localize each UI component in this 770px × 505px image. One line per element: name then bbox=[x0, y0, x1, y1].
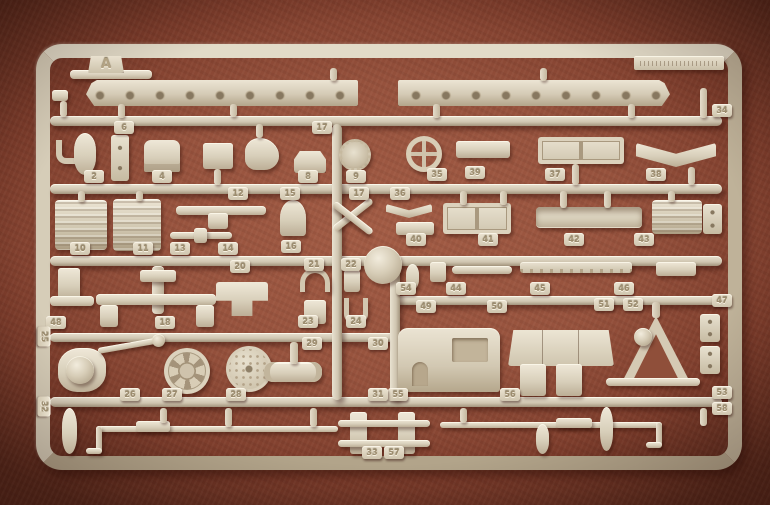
sprue-part-dome bbox=[66, 356, 94, 384]
part-number-tag: 43 bbox=[634, 233, 654, 246]
sprue-part-stub bbox=[230, 104, 237, 117]
part-number-tag: 27 bbox=[162, 388, 182, 401]
sprue-part-box bbox=[196, 305, 214, 327]
part-number-tag: 15 bbox=[280, 187, 300, 200]
part-number-tag: 30 bbox=[368, 337, 388, 350]
part-number-tag: 57 bbox=[384, 446, 404, 459]
sprue-part-stub bbox=[60, 101, 67, 117]
part-number-tag: 50 bbox=[487, 300, 507, 313]
sprue-part-box bbox=[656, 262, 696, 276]
embossed-marking bbox=[634, 56, 724, 70]
long-rod-part bbox=[440, 422, 662, 428]
sprue-part-box bbox=[208, 213, 228, 229]
part-number-tag: 11 bbox=[133, 242, 153, 255]
part-number-tag: 29 bbox=[302, 337, 322, 350]
gearbox-part bbox=[652, 200, 702, 234]
hub-dome-part bbox=[364, 246, 402, 284]
part-number-tag: 4 bbox=[152, 170, 172, 183]
tray-part bbox=[536, 207, 642, 228]
sprue-part-stub bbox=[310, 408, 317, 427]
part-number-tag: 17 bbox=[312, 121, 332, 134]
part-number-tag: 36 bbox=[390, 187, 410, 200]
part-number-tag: 55 bbox=[388, 388, 408, 401]
bell-housing-part bbox=[280, 200, 306, 236]
sprue-part-rodh bbox=[96, 294, 216, 305]
bracket-part bbox=[203, 143, 233, 169]
cylinder-pin-part bbox=[600, 407, 613, 451]
sprue-part-stub bbox=[668, 191, 675, 202]
part-number-tag: 33 bbox=[362, 446, 382, 459]
part-number-tag: 23 bbox=[298, 315, 318, 328]
part-number-tag: 37 bbox=[545, 168, 565, 181]
sprue-part-stub bbox=[136, 191, 143, 201]
pulley-part bbox=[634, 328, 652, 346]
sprue-part-stub bbox=[256, 124, 263, 138]
runner-horizontal-4-right bbox=[390, 296, 722, 305]
part-number-tag: 18 bbox=[155, 316, 175, 329]
sprue-part-stub bbox=[628, 104, 635, 118]
part-number-tag: 13 bbox=[170, 242, 190, 255]
part-number-tag: 28 bbox=[226, 388, 246, 401]
sprue-part-stub bbox=[225, 408, 232, 427]
sprue-part-stub bbox=[604, 191, 611, 208]
part-number-tag: 44 bbox=[446, 282, 466, 295]
sprue-part-stub bbox=[500, 191, 507, 205]
sprue-part-stub bbox=[540, 68, 547, 81]
sprue-part-stub bbox=[433, 104, 440, 118]
part-number-tag: 17 bbox=[349, 187, 369, 200]
cab-front-panel-part bbox=[398, 328, 500, 392]
panel-part bbox=[456, 141, 510, 158]
part-number-tag: 35 bbox=[427, 168, 447, 181]
part-number-tag: 31 bbox=[368, 388, 388, 401]
part-number-tag: 39 bbox=[465, 166, 485, 179]
sprue-part-stub bbox=[118, 104, 125, 118]
sprue-part-box bbox=[556, 364, 582, 396]
part-number-tag: 10 bbox=[70, 242, 90, 255]
perforated-plate-part bbox=[700, 346, 720, 374]
part-number-tag: 14 bbox=[218, 242, 238, 255]
sprue-part-rodh bbox=[338, 420, 430, 427]
part-number-tag: 46 bbox=[614, 282, 634, 295]
photo-stage: A342648917353937381011121314151617364041… bbox=[0, 0, 770, 505]
part-number-tag: 41 bbox=[478, 233, 498, 246]
part-number-tag: 12 bbox=[228, 187, 248, 200]
part-number-tag: 58 bbox=[712, 402, 732, 415]
sprue-part-box bbox=[344, 270, 360, 292]
sprue-part-stub bbox=[560, 191, 567, 208]
runner-horizontal-2 bbox=[50, 184, 722, 194]
sprue-part-stub bbox=[460, 191, 467, 205]
sprue-part-stub bbox=[460, 408, 467, 423]
cylinder-pin-part bbox=[536, 424, 549, 454]
runner-horizontal-4-left bbox=[50, 333, 394, 342]
part-number-tag: 49 bbox=[416, 300, 436, 313]
part-number-tag: 51 bbox=[594, 298, 614, 311]
sprue-part-dome bbox=[152, 334, 165, 347]
long-rod-part bbox=[96, 426, 338, 432]
sprue-part-stub bbox=[330, 68, 337, 81]
part-number-tag: 56 bbox=[500, 388, 520, 401]
runner-horizontal-1 bbox=[50, 116, 722, 126]
part-number-tag: 54 bbox=[396, 282, 416, 295]
part-number-tag: 21 bbox=[304, 258, 324, 271]
sprue-part-stub bbox=[160, 408, 167, 423]
part-number-tag: 34 bbox=[712, 104, 732, 117]
perforated-plate-part bbox=[700, 314, 720, 342]
mudguard-part bbox=[508, 330, 614, 366]
twin-box-part bbox=[443, 203, 511, 234]
sprue-part-stub bbox=[572, 164, 579, 185]
sprue-part-rodh bbox=[646, 442, 662, 448]
muffler-part bbox=[264, 362, 322, 382]
canister-part bbox=[74, 133, 96, 175]
part-number-tag: 38 bbox=[646, 168, 666, 181]
sprue-part-stub bbox=[78, 191, 85, 202]
sprue-part-box bbox=[100, 305, 118, 327]
perforated-plate-part bbox=[703, 204, 722, 234]
part-number-tag: 22 bbox=[341, 258, 361, 271]
small-gun-part bbox=[452, 266, 512, 274]
part-number-tag: 26 bbox=[120, 388, 140, 401]
part-number-tag: 40 bbox=[406, 233, 426, 246]
sprue-part-stub bbox=[290, 342, 298, 364]
plate-part bbox=[111, 135, 129, 181]
part-number-tag: 24 bbox=[346, 315, 366, 328]
sprue-part-stub bbox=[652, 302, 660, 318]
horseshoe-part bbox=[300, 268, 330, 292]
sprue-part-stub bbox=[214, 169, 221, 185]
photo-of-model-kit-sprue: { "scene": { "subject": "tan plastic mod… bbox=[0, 0, 770, 505]
cog-part bbox=[339, 139, 371, 171]
part-number-tag: 6 bbox=[114, 121, 134, 134]
sprue-part-box bbox=[194, 228, 207, 243]
part-number-tag: 16 bbox=[281, 240, 301, 253]
chassis-rail-left bbox=[86, 80, 358, 106]
sprue-part-stub bbox=[688, 167, 695, 185]
cylinder-pin-part bbox=[62, 408, 77, 454]
part-number-tag: 47 bbox=[712, 294, 732, 307]
part-number-tag: 53 bbox=[712, 386, 732, 399]
sprue-part-box bbox=[140, 270, 176, 282]
sprue-part-rodh bbox=[86, 448, 102, 454]
part-number-tag: 42 bbox=[564, 233, 584, 246]
sprue-letter: A bbox=[88, 56, 124, 73]
sprue-part-rodh bbox=[50, 296, 94, 306]
window-frame-part bbox=[538, 137, 624, 164]
part-number-tag: 2 bbox=[84, 170, 104, 183]
part-number-tag: 20 bbox=[230, 260, 250, 273]
steering-wheel-part bbox=[406, 136, 442, 172]
sprue-part-stub bbox=[700, 408, 707, 426]
sprue-part-stub bbox=[700, 88, 707, 118]
part-number-tag: 8 bbox=[298, 170, 318, 183]
part-number-tag: 45 bbox=[530, 282, 550, 295]
chassis-rail-right bbox=[398, 80, 670, 106]
sprue-part-box bbox=[430, 262, 446, 282]
hinge-strip-part bbox=[520, 262, 632, 273]
part-number-tag: 32 bbox=[38, 397, 51, 417]
part-number-tag: 9 bbox=[346, 170, 366, 183]
sprue-part-box bbox=[52, 90, 68, 101]
seat-part bbox=[144, 140, 180, 172]
sprue-part-box bbox=[520, 364, 546, 396]
sprue-part-rodh bbox=[606, 378, 700, 386]
part-number-tag: 52 bbox=[623, 298, 643, 311]
sprue-part-box bbox=[556, 418, 592, 428]
part-number-tag: 25 bbox=[38, 327, 51, 347]
